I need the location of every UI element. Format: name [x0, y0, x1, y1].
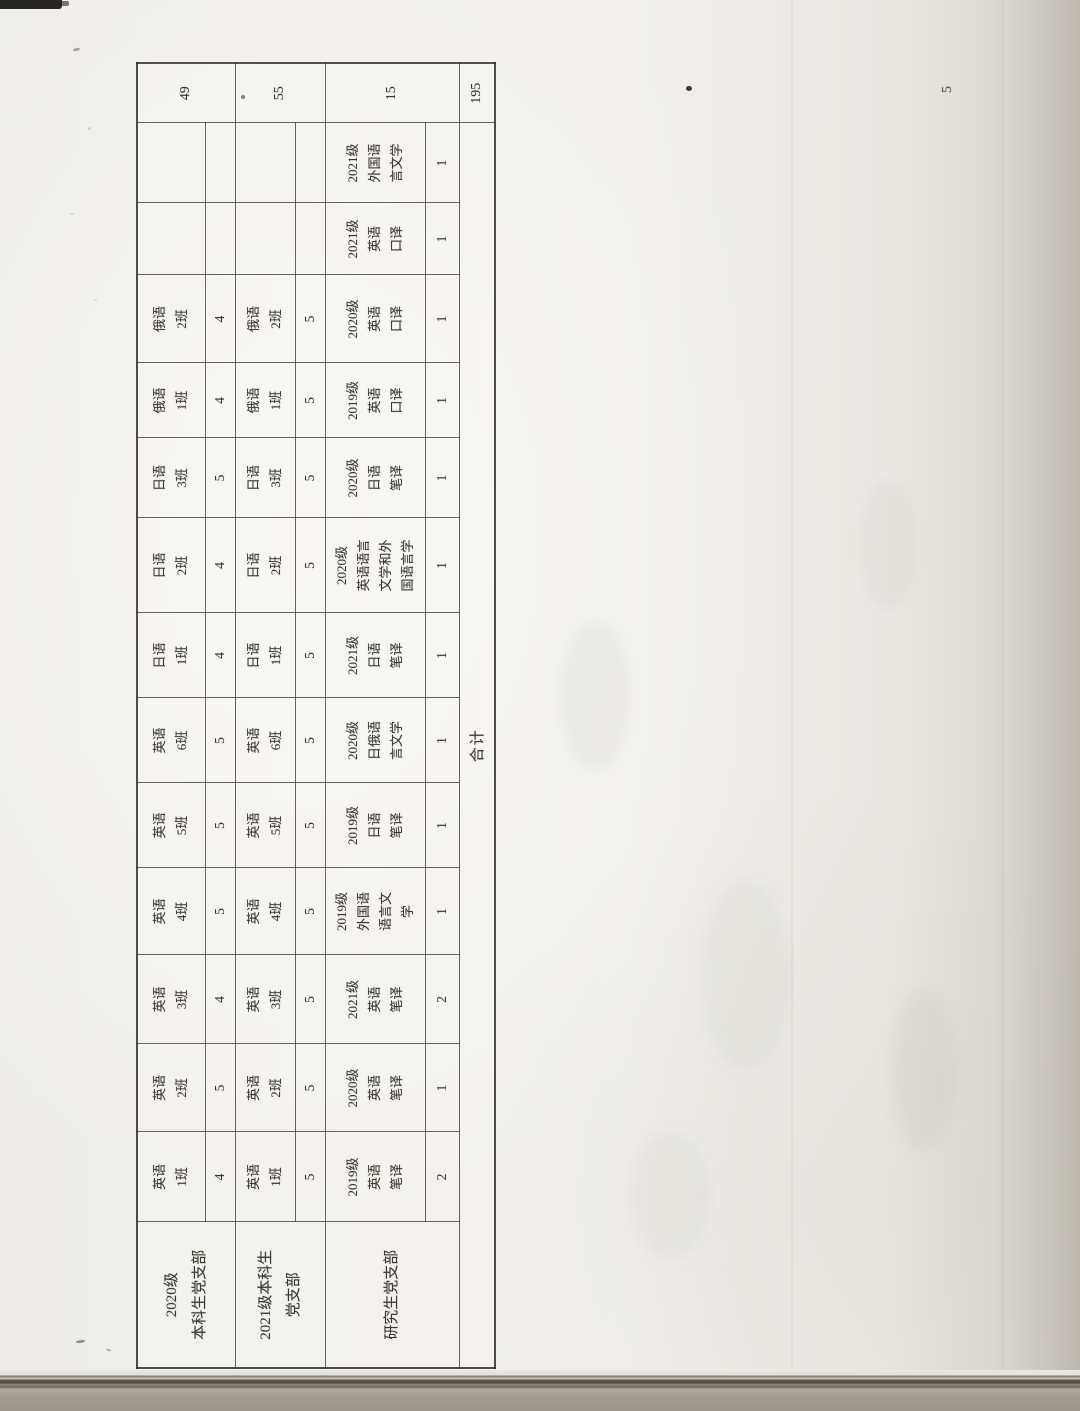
member-count-cell: 5 — [295, 698, 325, 783]
member-count-cell: 1 — [425, 363, 459, 438]
class-name-cell: 英语1班 — [235, 1132, 295, 1222]
class-name-cell: 2021级英语笔译 — [325, 955, 425, 1044]
class-name-cell: 日语2班 — [235, 518, 295, 613]
member-count-cell: 2 — [425, 1132, 459, 1222]
grand-total-cell: 195 — [459, 63, 495, 123]
class-name-cell: 英语1班 — [137, 1132, 205, 1222]
bleed-smudge — [630, 1130, 710, 1260]
scan-speck — [73, 47, 80, 51]
class-name-cell: 2021级英语口译 — [325, 203, 425, 275]
class-name-cell: 2020级日语笔译 — [325, 438, 425, 518]
class-name-cell: 英语4班 — [235, 868, 295, 955]
class-name-cell: 俄语1班 — [137, 363, 205, 438]
member-count-cell: 4 — [205, 518, 235, 613]
page-number: 5 — [940, 77, 958, 93]
scan-speck — [88, 127, 91, 130]
book-page-edges — [0, 1370, 1080, 1411]
member-count-cell: 1 — [425, 275, 459, 363]
member-count-cell — [205, 123, 235, 203]
class-name-cell: 2019级日语笔译 — [325, 783, 425, 868]
member-count-cell: 4 — [205, 613, 235, 698]
class-name-cell: 英语6班 — [137, 698, 205, 783]
class-name-cell: 英语2班 — [137, 1044, 205, 1132]
paper-fold-line — [791, 0, 793, 1411]
scan-speck — [70, 213, 74, 215]
scan-speck — [106, 1348, 111, 1351]
member-count-cell: 5 — [205, 783, 235, 868]
class-name-cell: 2021级日语笔译 — [325, 613, 425, 698]
class-name-cell — [235, 123, 295, 203]
class-name-cell — [235, 203, 295, 275]
class-name-cell: 俄语2班 — [235, 275, 295, 363]
member-count-cell: 1 — [425, 518, 459, 613]
group-total-cell: 15 — [325, 63, 459, 123]
ink-dot — [686, 86, 692, 91]
class-name-cell: 2020级英语语言文学和外国语言学 — [325, 518, 425, 613]
member-count-cell: 4 — [205, 955, 235, 1044]
member-count-cell: 5 — [295, 868, 325, 955]
member-count-cell: 5 — [205, 868, 235, 955]
ink-dot — [241, 95, 245, 99]
member-count-cell: 5 — [295, 438, 325, 518]
class-name-cell: 日语3班 — [235, 438, 295, 518]
member-count-cell: 5 — [295, 1044, 325, 1132]
bleed-smudge — [560, 620, 630, 770]
class-name-cell: 日语3班 — [137, 438, 205, 518]
branch-cell: 研究生党支部 — [325, 1222, 459, 1368]
class-name-cell: 2019级外国语语言文学 — [325, 868, 425, 955]
scan-speck — [76, 1339, 85, 1343]
page-curl-shadow — [990, 0, 1080, 1411]
bleed-smudge — [860, 480, 915, 610]
class-name-cell: 日语1班 — [137, 613, 205, 698]
member-count-cell — [295, 203, 325, 275]
class-name-cell: 英语5班 — [137, 783, 205, 868]
class-name-cell: 俄语1班 — [235, 363, 295, 438]
class-name-cell: 英语3班 — [235, 955, 295, 1044]
member-count-cell: 1 — [425, 698, 459, 783]
member-count-cell: 4 — [205, 363, 235, 438]
member-count-cell: 5 — [295, 363, 325, 438]
member-count-cell: 1 — [425, 783, 459, 868]
group-total-cell: 55 — [235, 63, 325, 123]
member-count-cell: 4 — [205, 1132, 235, 1222]
class-name-cell: 2019级英语口译 — [325, 363, 425, 438]
member-count-cell: 1 — [425, 123, 459, 203]
member-count-cell: 5 — [295, 275, 325, 363]
party-branch-member-table: 2020级本科生党支部英语1班英语2班英语3班英语4班英语5班英语6班日语1班日… — [136, 62, 496, 1369]
class-name-cell: 英语5班 — [235, 783, 295, 868]
member-count-cell: 5 — [205, 1044, 235, 1132]
class-name-cell: 日语1班 — [235, 613, 295, 698]
branch-cell: 2021级本科生党支部 — [235, 1222, 325, 1368]
bleed-smudge — [700, 880, 790, 1070]
class-name-cell: 英语2班 — [235, 1044, 295, 1132]
class-name-cell: 英语6班 — [235, 698, 295, 783]
class-name-cell: 2020级英语笔译 — [325, 1044, 425, 1132]
class-name-cell — [137, 203, 205, 275]
class-name-cell: 日语2班 — [137, 518, 205, 613]
member-count-cell: 1 — [425, 438, 459, 518]
member-count-cell: 5 — [295, 955, 325, 1044]
group-total-cell: 49 — [137, 63, 235, 123]
scan-speck — [94, 299, 97, 301]
footer-total-label-cell: 合计 — [459, 123, 495, 1368]
member-count-cell — [295, 123, 325, 203]
member-count-cell: 5 — [295, 613, 325, 698]
member-count-cell: 5 — [295, 783, 325, 868]
member-count-cell: 2 — [425, 955, 459, 1044]
bleed-smudge — [890, 990, 955, 1150]
class-name-cell: 2019级英语笔译 — [325, 1132, 425, 1222]
member-count-cell: 5 — [295, 1132, 325, 1222]
class-name-cell: 俄语2班 — [137, 275, 205, 363]
class-name-cell: 2020级日俄语言文学 — [325, 698, 425, 783]
class-name-cell: 英语3班 — [137, 955, 205, 1044]
member-count-cell — [205, 203, 235, 275]
member-count-cell: 1 — [425, 203, 459, 275]
scanned-document-page: 2020级本科生党支部英语1班英语2班英语3班英语4班英语5班英语6班日语1班日… — [0, 0, 1080, 1411]
rotated-table-region: 2020级本科生党支部英语1班英语2班英语3班英语4班英语5班英语6班日语1班日… — [136, 64, 494, 1369]
member-count-cell: 5 — [205, 438, 235, 518]
member-count-cell: 1 — [425, 613, 459, 698]
member-count-cell: 1 — [425, 868, 459, 955]
member-count-cell: 4 — [205, 275, 235, 363]
member-count-cell: 5 — [295, 518, 325, 613]
class-name-cell: 2020级英语口译 — [325, 275, 425, 363]
class-name-cell: 2021级外国语言文学 — [325, 123, 425, 203]
class-name-cell: 英语4班 — [137, 868, 205, 955]
branch-cell: 2020级本科生党支部 — [137, 1222, 235, 1368]
member-count-cell: 5 — [205, 698, 235, 783]
member-count-cell: 1 — [425, 1044, 459, 1132]
class-name-cell — [137, 123, 205, 203]
scan-ink-mark — [55, 1, 69, 6]
scan-ink-mark — [0, 0, 62, 9]
